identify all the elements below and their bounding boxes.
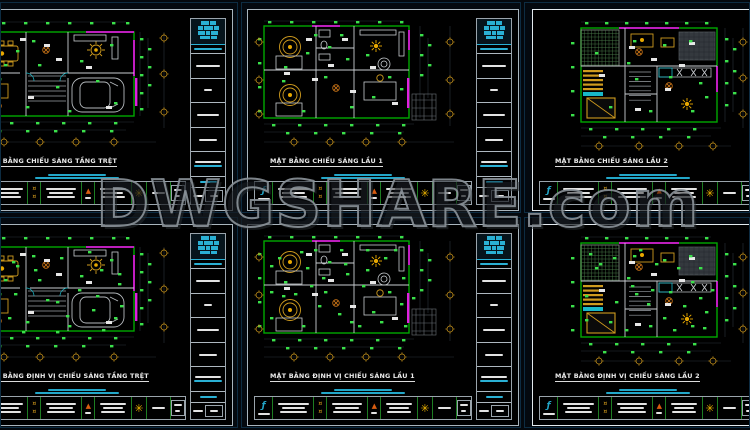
lamp-icon: ¤: [318, 401, 322, 407]
floor-plan-svg: [539, 233, 750, 369]
caption-line: [619, 174, 677, 176]
legend-minitable: [742, 185, 750, 201]
legend-minitable: [171, 400, 186, 416]
floor-plan: [254, 233, 476, 369]
caption-line: [35, 177, 119, 179]
caption-line: [48, 174, 106, 176]
preview-panel-top-left[interactable]: MẶT BẰNG CHIẾU SÁNG TẦNG TRỆT ƒ ¤¤ ▲ ✳: [0, 2, 238, 213]
title-block: [190, 233, 226, 420]
floor-plan: [254, 18, 476, 154]
sheet-number-cell: [205, 405, 223, 417]
caption-line: [321, 177, 405, 179]
company-logo: [191, 19, 225, 45]
drawing-sheet: MẶT BẰNG CHIẾU SÁNG LẦU 1 ƒ ¤¤ ▲ ✳: [247, 9, 519, 211]
floor-plan: [539, 233, 750, 369]
preview-panel-bottom-right[interactable]: MẶT BẰNG ĐỊNH VỊ CHIẾU SÁNG LẦU 2 ƒ ¤¤ ▲…: [524, 217, 750, 428]
company-logo: [477, 234, 511, 260]
flower-icon: ✳: [705, 403, 714, 414]
flower-icon: ✳: [420, 188, 429, 199]
lamp-icon: ¤: [603, 401, 607, 407]
title-block-footer: [191, 187, 225, 204]
preview-panel-bottom-center[interactable]: MẶT BẰNG ĐỊNH VỊ CHIẾU SÁNG LẦU 1 ƒ ¤¤ ▲…: [241, 217, 521, 428]
lamp-icon: ¤: [318, 186, 322, 192]
triangle-icon: ▲: [657, 188, 662, 195]
legend-caption: [0, 174, 186, 179]
drawing-sheet: MẶT BẰNG CHIẾU SÁNG LẦU 2 ƒ ¤¤ ▲ ✳: [532, 9, 750, 211]
drawing-sheet: MẶT BẰNG ĐỊNH VỊ CHIẾU SÁNG LẦU 1 ƒ ¤¤ ▲…: [247, 224, 519, 426]
floor-plan-svg: [0, 233, 190, 369]
sheet-title: MẶT BẰNG CHIẾU SÁNG LẦU 2: [555, 157, 668, 167]
floor-plan-svg: [254, 233, 476, 369]
title-block: [476, 18, 512, 205]
floor-plan: [0, 18, 190, 154]
sheet-number-cell: [491, 405, 509, 417]
flower-icon: ✳: [705, 188, 714, 199]
drawing-sheet: MẶT BẰNG ĐỊNH VỊ CHIẾU SÁNG LẦU 2 ƒ ¤¤ ▲…: [532, 224, 750, 426]
signature-icon: ƒ: [262, 187, 266, 196]
title-block-footer: [477, 402, 511, 419]
sheet-title: MẶT BẰNG ĐỊNH VỊ CHIẾU SÁNG TẦNG TRỆT: [0, 372, 149, 382]
floor-plan: [0, 233, 190, 369]
title-block: [476, 233, 512, 420]
legend-caption: [0, 389, 186, 394]
legend-band: ƒ ¤¤ ▲ ✳: [0, 181, 186, 205]
flower-icon: ✳: [134, 188, 143, 199]
legend-caption: [539, 174, 750, 179]
legend-band: ƒ ¤¤ ▲ ✳: [254, 396, 472, 420]
legend-band: ƒ ¤¤ ▲ ✳: [539, 396, 750, 420]
lamp-icon: ¤: [32, 194, 36, 200]
drawing-sheet: MẶT BẰNG CHIẾU SÁNG TẦNG TRỆT ƒ ¤¤ ▲ ✳: [0, 9, 233, 211]
caption-line: [334, 174, 392, 176]
flower-icon: ✳: [134, 403, 143, 414]
triangle-icon: ▲: [372, 403, 377, 410]
legend-minitable: [457, 400, 472, 416]
company-logo: [477, 19, 511, 45]
sheet-title: MẶT BẰNG ĐỊNH VỊ CHIẾU SÁNG LẦU 2: [555, 372, 700, 382]
floor-plan: [539, 18, 750, 154]
sheet-title: MẶT BẰNG ĐỊNH VỊ CHIẾU SÁNG LẦU 1: [270, 372, 415, 382]
lamp-icon: ¤: [318, 194, 322, 200]
caption-line: [35, 392, 119, 394]
lamp-icon: ¤: [603, 186, 607, 192]
sheet-title: MẶT BẰNG CHIẾU SÁNG LẦU 1: [270, 157, 383, 167]
caption-line: [619, 389, 677, 391]
preview-panel-top-center[interactable]: MẶT BẰNG CHIẾU SÁNG LẦU 1 ƒ ¤¤ ▲ ✳: [241, 2, 521, 213]
legend-band: ƒ ¤¤ ▲ ✳: [254, 181, 472, 205]
flower-icon: ✳: [420, 403, 429, 414]
signature-icon: ƒ: [547, 402, 551, 411]
title-block-footer: [191, 402, 225, 419]
legend-band: ƒ ¤¤ ▲ ✳: [0, 396, 186, 420]
triangle-icon: ▲: [372, 188, 377, 195]
triangle-icon: ▲: [86, 188, 91, 195]
triangle-icon: ▲: [657, 403, 662, 410]
legend-caption: [539, 389, 750, 394]
floor-plan-svg: [0, 18, 190, 154]
signature-icon: ƒ: [547, 187, 551, 196]
caption-line: [321, 392, 405, 394]
floor-plan-svg: [539, 18, 750, 154]
lamp-icon: ¤: [32, 409, 36, 415]
caption-line: [606, 177, 690, 179]
caption-line: [48, 389, 106, 391]
legend-band: ƒ ¤¤ ▲ ✳: [539, 181, 750, 205]
lamp-icon: ¤: [603, 409, 607, 415]
lamp-icon: ¤: [32, 401, 36, 407]
legend-caption: [254, 174, 472, 179]
triangle-icon: ▲: [86, 403, 91, 410]
sheet-number-cell: [205, 190, 223, 202]
legend-minitable: [171, 185, 186, 201]
floor-plan-svg: [254, 18, 476, 154]
caption-line: [606, 392, 690, 394]
lamp-icon: ¤: [32, 186, 36, 192]
caption-line: [334, 389, 392, 391]
title-block: [190, 18, 226, 205]
legend-caption: [254, 389, 472, 394]
lamp-icon: ¤: [603, 194, 607, 200]
preview-panel-bottom-left[interactable]: MẶT BẰNG ĐỊNH VỊ CHIẾU SÁNG TẦNG TRỆT ƒ …: [0, 217, 238, 428]
legend-minitable: [457, 185, 472, 201]
title-block-footer: [477, 187, 511, 204]
cad-preview-montage: MẶT BẰNG CHIẾU SÁNG TẦNG TRỆT ƒ ¤¤ ▲ ✳ M…: [0, 0, 750, 430]
preview-panel-top-right[interactable]: MẶT BẰNG CHIẾU SÁNG LẦU 2 ƒ ¤¤ ▲ ✳: [524, 2, 750, 213]
company-logo: [191, 234, 225, 260]
signature-icon: ƒ: [262, 402, 266, 411]
sheet-title: MẶT BẰNG CHIẾU SÁNG TẦNG TRỆT: [0, 157, 117, 167]
legend-minitable: [742, 400, 750, 416]
drawing-sheet: MẶT BẰNG ĐỊNH VỊ CHIẾU SÁNG TẦNG TRỆT ƒ …: [0, 224, 233, 426]
lamp-icon: ¤: [318, 409, 322, 415]
sheet-number-cell: [491, 190, 509, 202]
